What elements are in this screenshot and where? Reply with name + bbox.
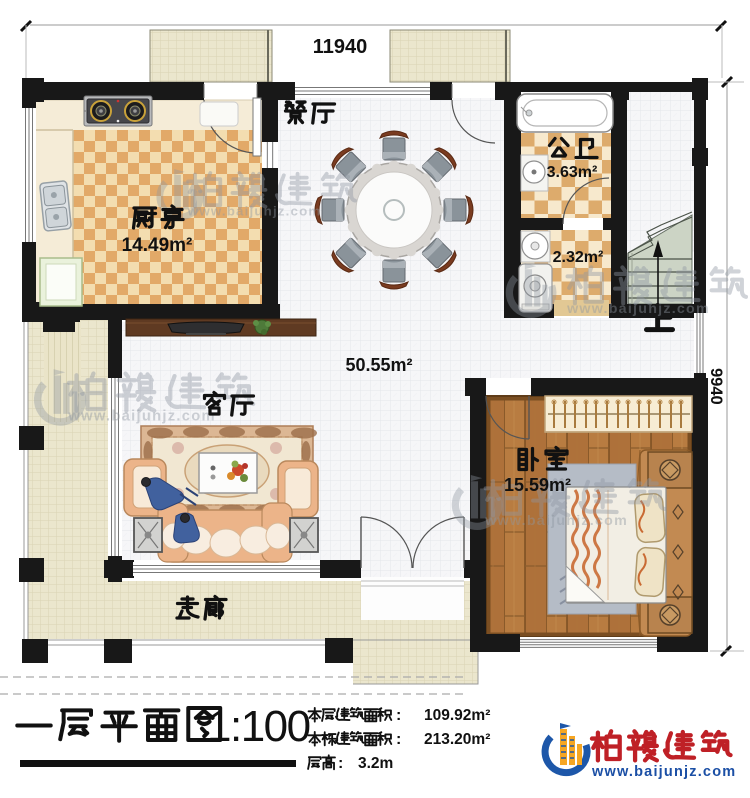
svg-text:14.49m²: 14.49m² — [122, 235, 193, 256]
svg-text:www.baijunjz.com: www.baijunjz.com — [67, 408, 216, 424]
svg-text::: : — [396, 707, 401, 724]
svg-text:50.55m²: 50.55m² — [345, 355, 412, 375]
svg-text:www.baijunjz.com: www.baijunjz.com — [187, 204, 322, 219]
svg-text::: : — [396, 731, 401, 748]
svg-text:1:100: 1:100 — [207, 702, 310, 751]
svg-text:9940: 9940 — [707, 368, 725, 405]
svg-text:15.59m²: 15.59m² — [504, 475, 571, 495]
svg-text:109.92m²: 109.92m² — [424, 707, 490, 724]
svg-text:www.baijunjz.com: www.baijunjz.com — [591, 764, 736, 780]
svg-text::: : — [338, 755, 343, 772]
svg-text:2.32m²: 2.32m² — [553, 249, 604, 266]
svg-text:3.2m: 3.2m — [358, 755, 393, 772]
svg-text:www.baijunjz.com: www.baijunjz.com — [484, 513, 628, 529]
svg-text:11940: 11940 — [313, 36, 368, 58]
svg-text:www.baijunjz.com: www.baijunjz.com — [566, 301, 710, 317]
svg-text:213.20m²: 213.20m² — [424, 731, 490, 748]
svg-text:3.63m²: 3.63m² — [547, 164, 598, 181]
